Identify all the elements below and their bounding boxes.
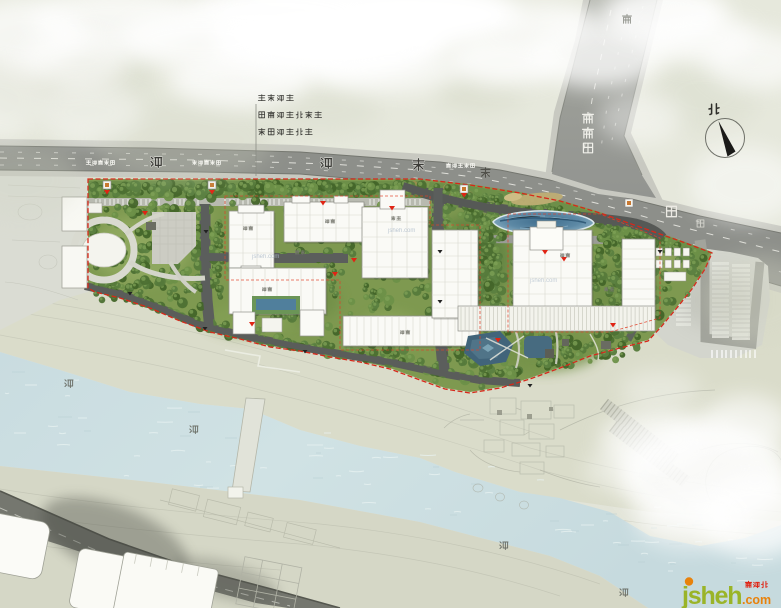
svg-text:jsheh.com: jsheh.com — [529, 278, 557, 284]
svg-text:jsheh: jsheh — [681, 582, 741, 608]
svg-text:jsheh.com: jsheh.com — [251, 254, 279, 260]
svg-text:.com: .com — [742, 593, 771, 607]
svg-text:jsheh.com: jsheh.com — [387, 228, 415, 234]
